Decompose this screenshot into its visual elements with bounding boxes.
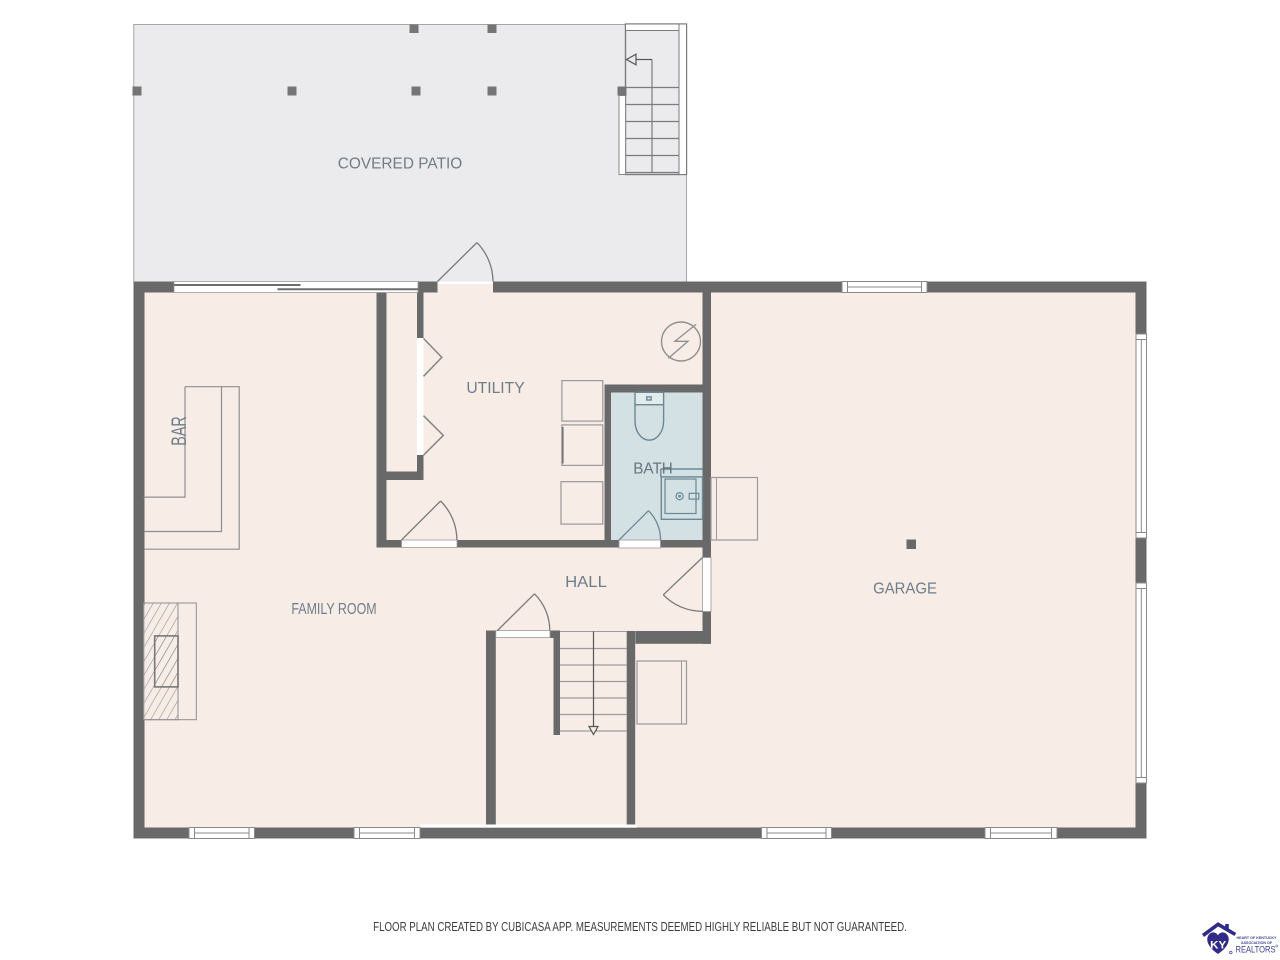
- svg-text:UTILITY: UTILITY: [466, 380, 525, 397]
- svg-text:GARAGE: GARAGE: [873, 580, 937, 597]
- svg-text:HEART OF KENTUCKY: HEART OF KENTUCKY: [1237, 936, 1278, 940]
- svg-text:FAMILY ROOM: FAMILY ROOM: [291, 601, 376, 618]
- svg-text:BAR: BAR: [168, 416, 191, 446]
- svg-text:HALL: HALL: [565, 574, 607, 591]
- svg-text:BATH: BATH: [633, 460, 672, 477]
- svg-text:REALTORS: REALTORS: [1236, 944, 1276, 955]
- svg-text:FLOOR PLAN CREATED BY CUBICASA: FLOOR PLAN CREATED BY CUBICASA APP. MEAS…: [373, 920, 907, 934]
- svg-text:KY: KY: [1210, 940, 1227, 952]
- svg-text:COVERED PATIO: COVERED PATIO: [338, 155, 463, 172]
